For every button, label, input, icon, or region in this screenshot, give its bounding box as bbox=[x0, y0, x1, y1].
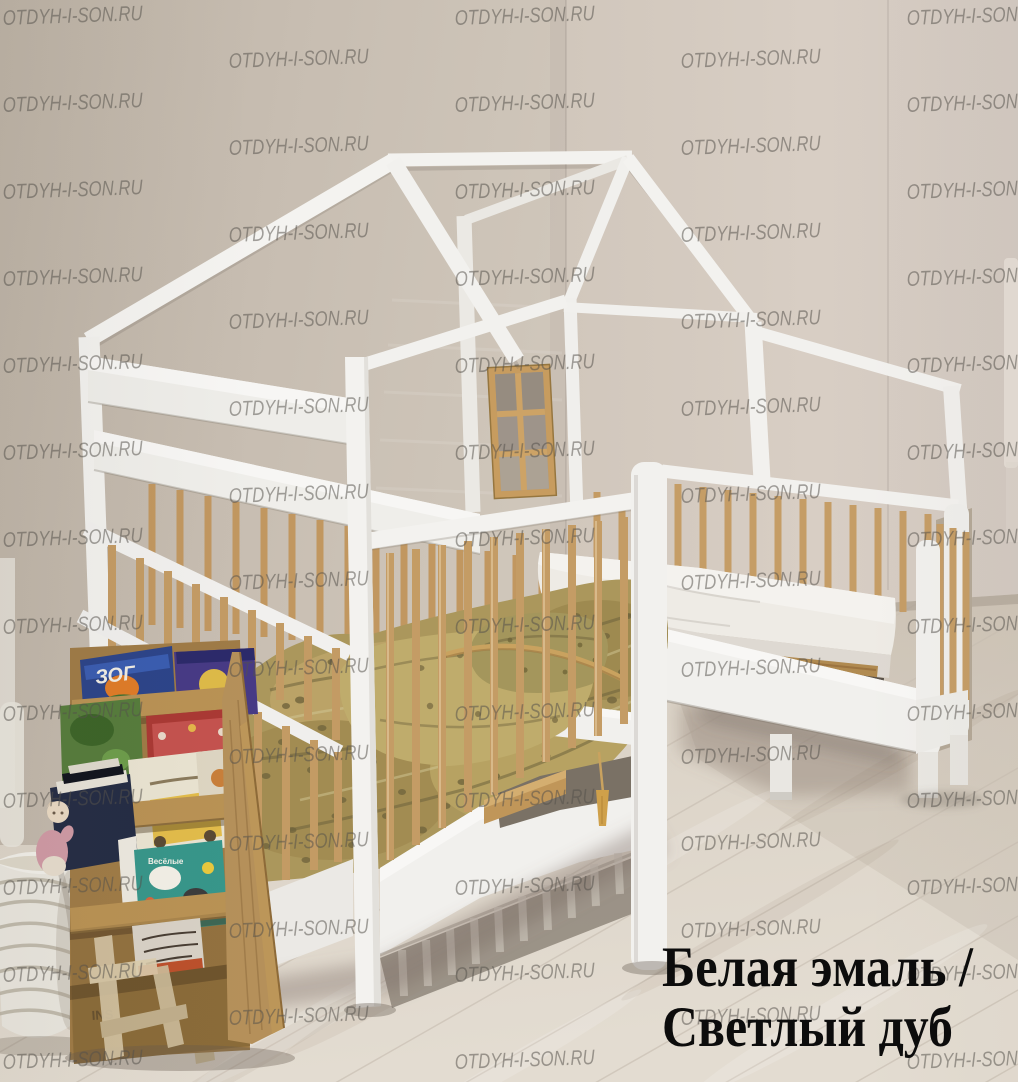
svg-text:OTDYH-I-SON.RU: OTDYH-I-SON.RU bbox=[228, 1002, 369, 1030]
svg-text:OTDYH-I-SON.RU: OTDYH-I-SON.RU bbox=[454, 263, 595, 291]
svg-text:OTDYH-I-SON.RU: OTDYH-I-SON.RU bbox=[906, 437, 1018, 465]
svg-text:OTDYH-I-SON.RU: OTDYH-I-SON.RU bbox=[454, 872, 595, 900]
svg-text:OTDYH-I-SON.RU: OTDYH-I-SON.RU bbox=[2, 89, 143, 117]
svg-text:OTDYH-I-SON.RU: OTDYH-I-SON.RU bbox=[228, 219, 369, 247]
svg-text:OTDYH-I-SON.RU: OTDYH-I-SON.RU bbox=[2, 959, 143, 987]
svg-text:OTDYH-I-SON.RU: OTDYH-I-SON.RU bbox=[2, 350, 143, 378]
svg-text:OTDYH-I-SON.RU: OTDYH-I-SON.RU bbox=[454, 1046, 595, 1074]
svg-text:OTDYH-I-SON.RU: OTDYH-I-SON.RU bbox=[454, 437, 595, 465]
svg-text:OTDYH-I-SON.RU: OTDYH-I-SON.RU bbox=[228, 480, 369, 508]
svg-text:OTDYH-I-SON.RU: OTDYH-I-SON.RU bbox=[228, 915, 369, 943]
svg-text:OTDYH-I-SON.RU: OTDYH-I-SON.RU bbox=[228, 45, 369, 73]
svg-text:Белая эмаль /: Белая эмаль / bbox=[662, 936, 974, 999]
svg-text:OTDYH-I-SON.RU: OTDYH-I-SON.RU bbox=[228, 654, 369, 682]
svg-text:OTDYH-I-SON.RU: OTDYH-I-SON.RU bbox=[228, 393, 369, 421]
svg-text:OTDYH-I-SON.RU: OTDYH-I-SON.RU bbox=[2, 872, 143, 900]
svg-text:OTDYH-I-SON.RU: OTDYH-I-SON.RU bbox=[228, 828, 369, 856]
svg-text:OTDYH-I-SON.RU: OTDYH-I-SON.RU bbox=[906, 350, 1018, 378]
svg-text:OTDYH-I-SON.RU: OTDYH-I-SON.RU bbox=[680, 654, 821, 682]
svg-text:OTDYH-I-SON.RU: OTDYH-I-SON.RU bbox=[680, 219, 821, 247]
svg-text:OTDYH-I-SON.RU: OTDYH-I-SON.RU bbox=[2, 2, 143, 30]
svg-text:OTDYH-I-SON.RU: OTDYH-I-SON.RU bbox=[2, 176, 143, 204]
svg-text:OTDYH-I-SON.RU: OTDYH-I-SON.RU bbox=[906, 872, 1018, 900]
svg-text:OTDYH-I-SON.RU: OTDYH-I-SON.RU bbox=[2, 611, 143, 639]
svg-text:OTDYH-I-SON.RU: OTDYH-I-SON.RU bbox=[680, 480, 821, 508]
svg-text:OTDYH-I-SON.RU: OTDYH-I-SON.RU bbox=[2, 698, 143, 726]
svg-text:OTDYH-I-SON.RU: OTDYH-I-SON.RU bbox=[680, 306, 821, 334]
svg-text:OTDYH-I-SON.RU: OTDYH-I-SON.RU bbox=[906, 611, 1018, 639]
svg-text:OTDYH-I-SON.RU: OTDYH-I-SON.RU bbox=[2, 785, 143, 813]
svg-text:OTDYH-I-SON.RU: OTDYH-I-SON.RU bbox=[454, 611, 595, 639]
svg-text:Светлый дуб: Светлый дуб bbox=[662, 996, 953, 1059]
svg-text:OTDYH-I-SON.RU: OTDYH-I-SON.RU bbox=[454, 89, 595, 117]
svg-text:OTDYH-I-SON.RU: OTDYH-I-SON.RU bbox=[906, 785, 1018, 813]
svg-text:OTDYH-I-SON.RU: OTDYH-I-SON.RU bbox=[228, 741, 369, 769]
svg-text:OTDYH-I-SON.RU: OTDYH-I-SON.RU bbox=[454, 176, 595, 204]
svg-text:OTDYH-I-SON.RU: OTDYH-I-SON.RU bbox=[454, 698, 595, 726]
svg-text:OTDYH-I-SON.RU: OTDYH-I-SON.RU bbox=[906, 2, 1018, 30]
svg-text:OTDYH-I-SON.RU: OTDYH-I-SON.RU bbox=[454, 785, 595, 813]
svg-text:OTDYH-I-SON.RU: OTDYH-I-SON.RU bbox=[906, 524, 1018, 552]
svg-text:OTDYH-I-SON.RU: OTDYH-I-SON.RU bbox=[2, 1046, 143, 1074]
svg-text:OTDYH-I-SON.RU: OTDYH-I-SON.RU bbox=[906, 263, 1018, 291]
svg-text:OTDYH-I-SON.RU: OTDYH-I-SON.RU bbox=[2, 437, 143, 465]
svg-text:OTDYH-I-SON.RU: OTDYH-I-SON.RU bbox=[228, 132, 369, 160]
svg-text:OTDYH-I-SON.RU: OTDYH-I-SON.RU bbox=[2, 263, 143, 291]
svg-text:OTDYH-I-SON.RU: OTDYH-I-SON.RU bbox=[228, 306, 369, 334]
svg-text:OTDYH-I-SON.RU: OTDYH-I-SON.RU bbox=[906, 89, 1018, 117]
svg-text:OTDYH-I-SON.RU: OTDYH-I-SON.RU bbox=[2, 524, 143, 552]
svg-text:OTDYH-I-SON.RU: OTDYH-I-SON.RU bbox=[454, 524, 595, 552]
svg-text:OTDYH-I-SON.RU: OTDYH-I-SON.RU bbox=[680, 741, 821, 769]
svg-text:OTDYH-I-SON.RU: OTDYH-I-SON.RU bbox=[680, 393, 821, 421]
svg-text:OTDYH-I-SON.RU: OTDYH-I-SON.RU bbox=[680, 567, 821, 595]
svg-text:OTDYH-I-SON.RU: OTDYH-I-SON.RU bbox=[680, 45, 821, 73]
svg-text:OTDYH-I-SON.RU: OTDYH-I-SON.RU bbox=[454, 2, 595, 30]
svg-text:OTDYH-I-SON.RU: OTDYH-I-SON.RU bbox=[454, 959, 595, 987]
svg-text:OTDYH-I-SON.RU: OTDYH-I-SON.RU bbox=[454, 350, 595, 378]
svg-text:OTDYH-I-SON.RU: OTDYH-I-SON.RU bbox=[680, 828, 821, 856]
svg-text:OTDYH-I-SON.RU: OTDYH-I-SON.RU bbox=[680, 132, 821, 160]
svg-text:OTDYH-I-SON.RU: OTDYH-I-SON.RU bbox=[228, 567, 369, 595]
svg-text:OTDYH-I-SON.RU: OTDYH-I-SON.RU bbox=[906, 698, 1018, 726]
svg-text:OTDYH-I-SON.RU: OTDYH-I-SON.RU bbox=[906, 176, 1018, 204]
